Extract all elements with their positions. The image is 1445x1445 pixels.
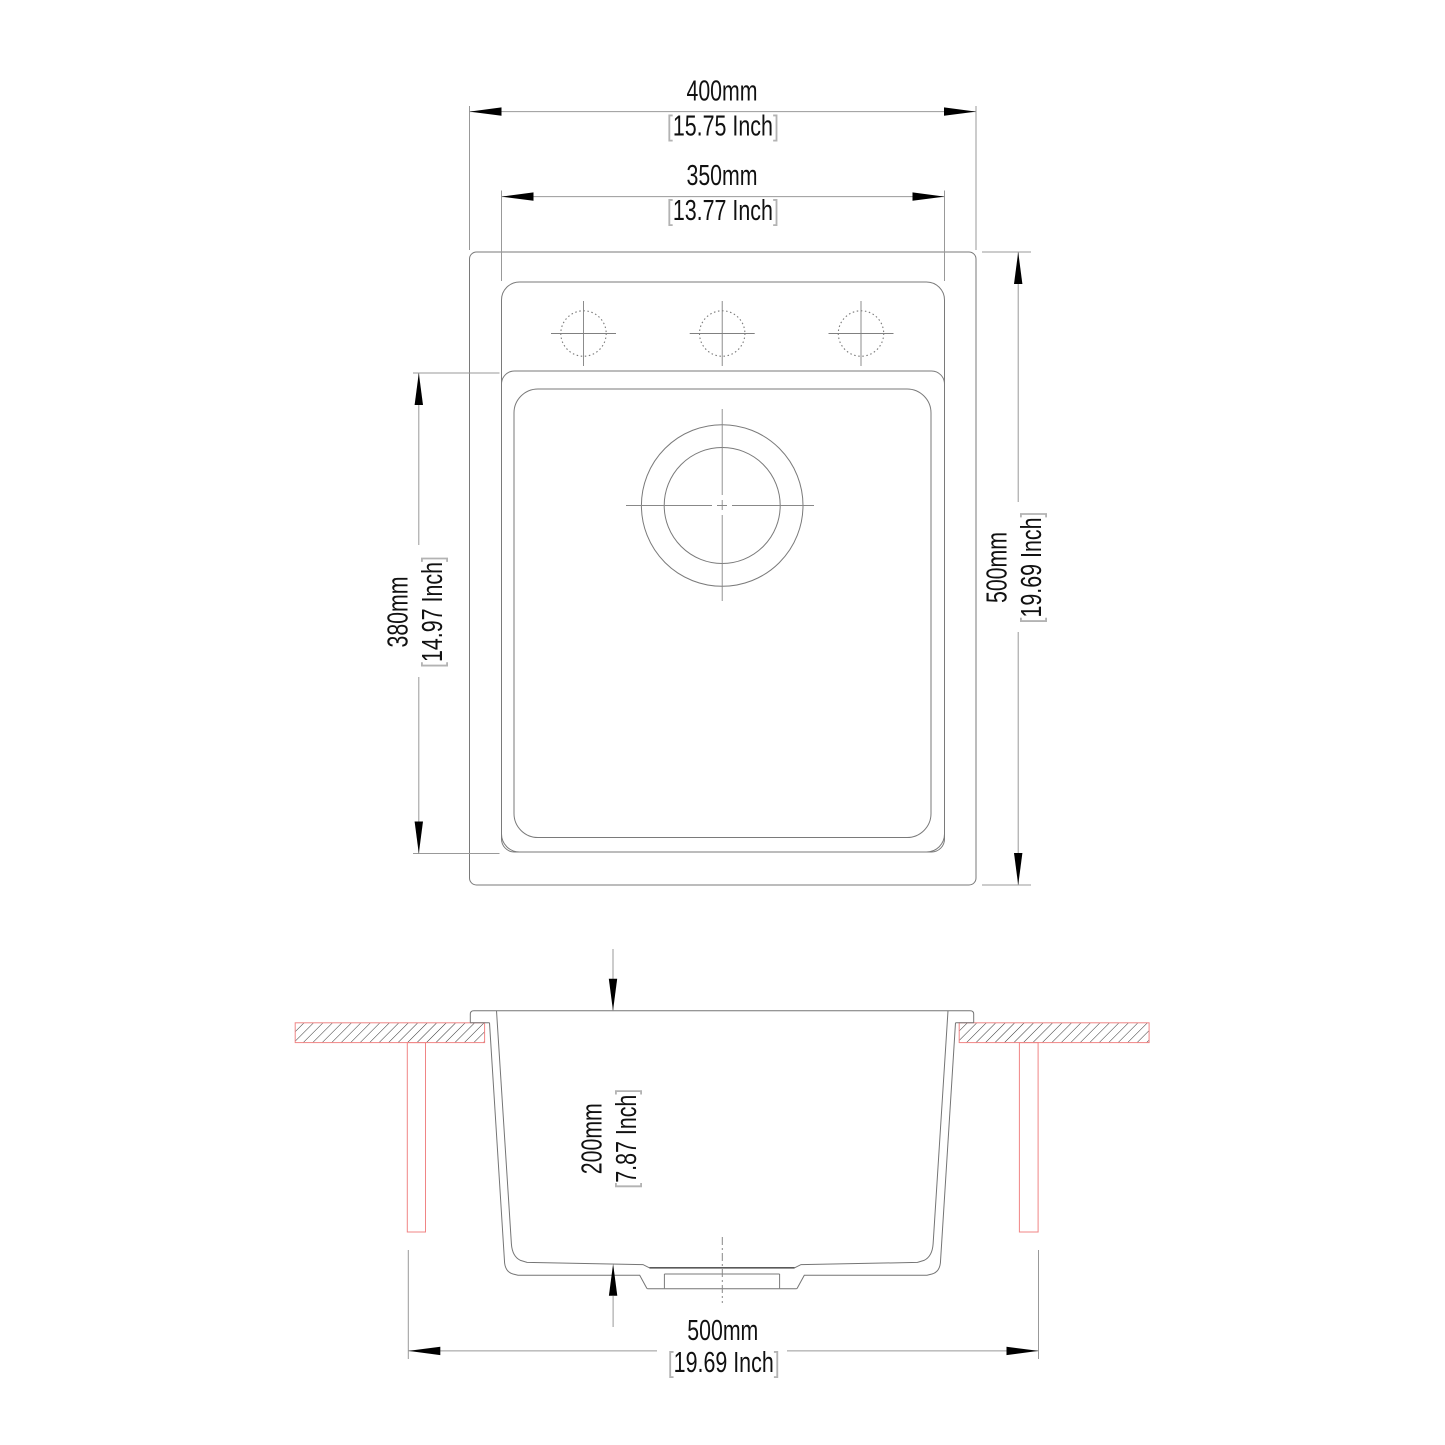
svg-text:[19.69 Inch]: [19.69 Inch]	[668, 1347, 780, 1379]
svg-text:400mm: 400mm	[687, 75, 758, 107]
svg-text:200mm: 200mm	[577, 1103, 609, 1174]
svg-text:350mm: 350mm	[687, 160, 758, 192]
svg-text:500mm: 500mm	[687, 1315, 758, 1347]
svg-text:[19.69 Inch]: [19.69 Inch]	[1016, 512, 1048, 624]
svg-text:500mm: 500mm	[982, 532, 1014, 603]
svg-text:[13.77 Inch]: [13.77 Inch]	[667, 195, 779, 227]
svg-text:[15.75 Inch]: [15.75 Inch]	[667, 111, 779, 143]
svg-text:380mm: 380mm	[382, 577, 414, 648]
svg-text:[14.97 Inch]: [14.97 Inch]	[417, 556, 449, 668]
svg-text:[7.87 Inch]: [7.87 Inch]	[611, 1089, 643, 1189]
